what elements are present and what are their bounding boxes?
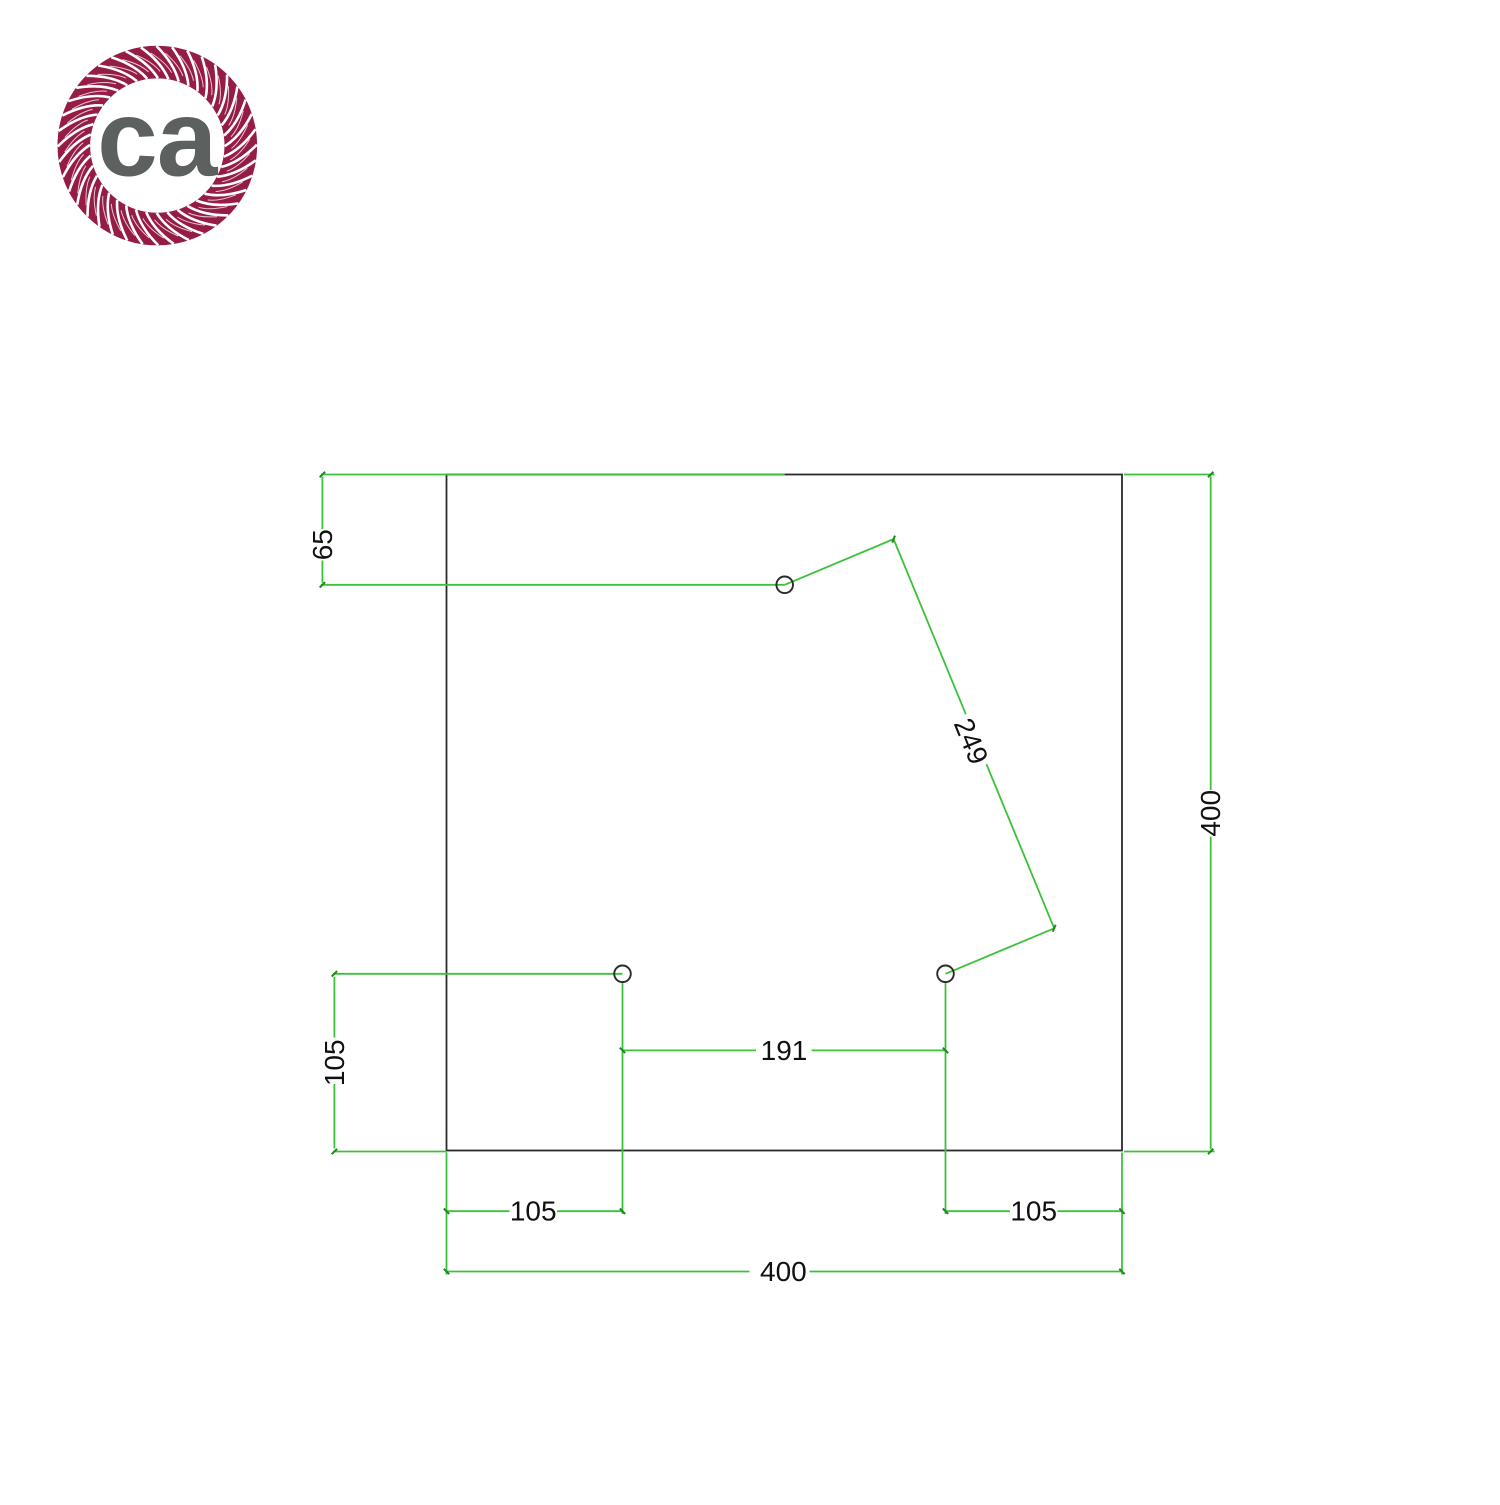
svg-text:105: 105 — [510, 1196, 557, 1227]
svg-text:65: 65 — [307, 529, 338, 560]
svg-text:400: 400 — [1195, 790, 1226, 837]
svg-text:105: 105 — [319, 1039, 350, 1086]
svg-text:ca: ca — [97, 78, 219, 200]
svg-text:191: 191 — [761, 1035, 808, 1066]
svg-text:249: 249 — [948, 714, 994, 769]
svg-text:400: 400 — [760, 1256, 807, 1287]
svg-text:105: 105 — [1010, 1196, 1057, 1227]
